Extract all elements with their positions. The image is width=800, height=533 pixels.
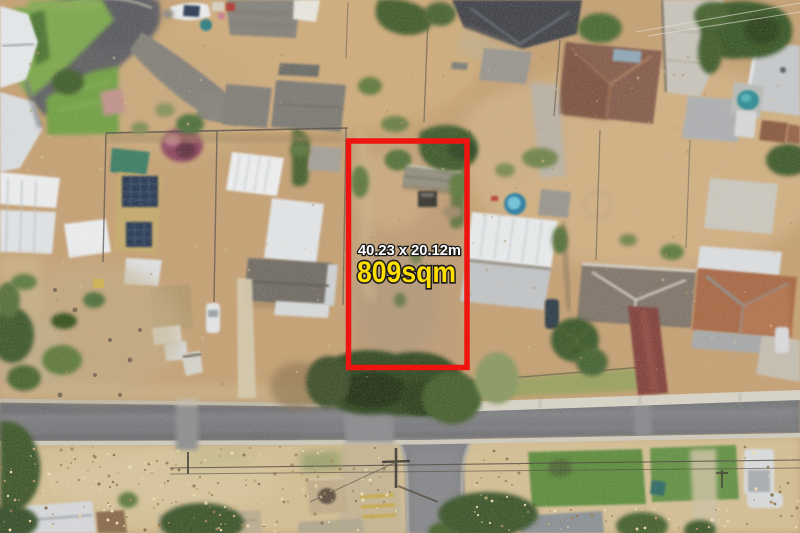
svg-text:809sqm: 809sqm — [357, 256, 456, 289]
